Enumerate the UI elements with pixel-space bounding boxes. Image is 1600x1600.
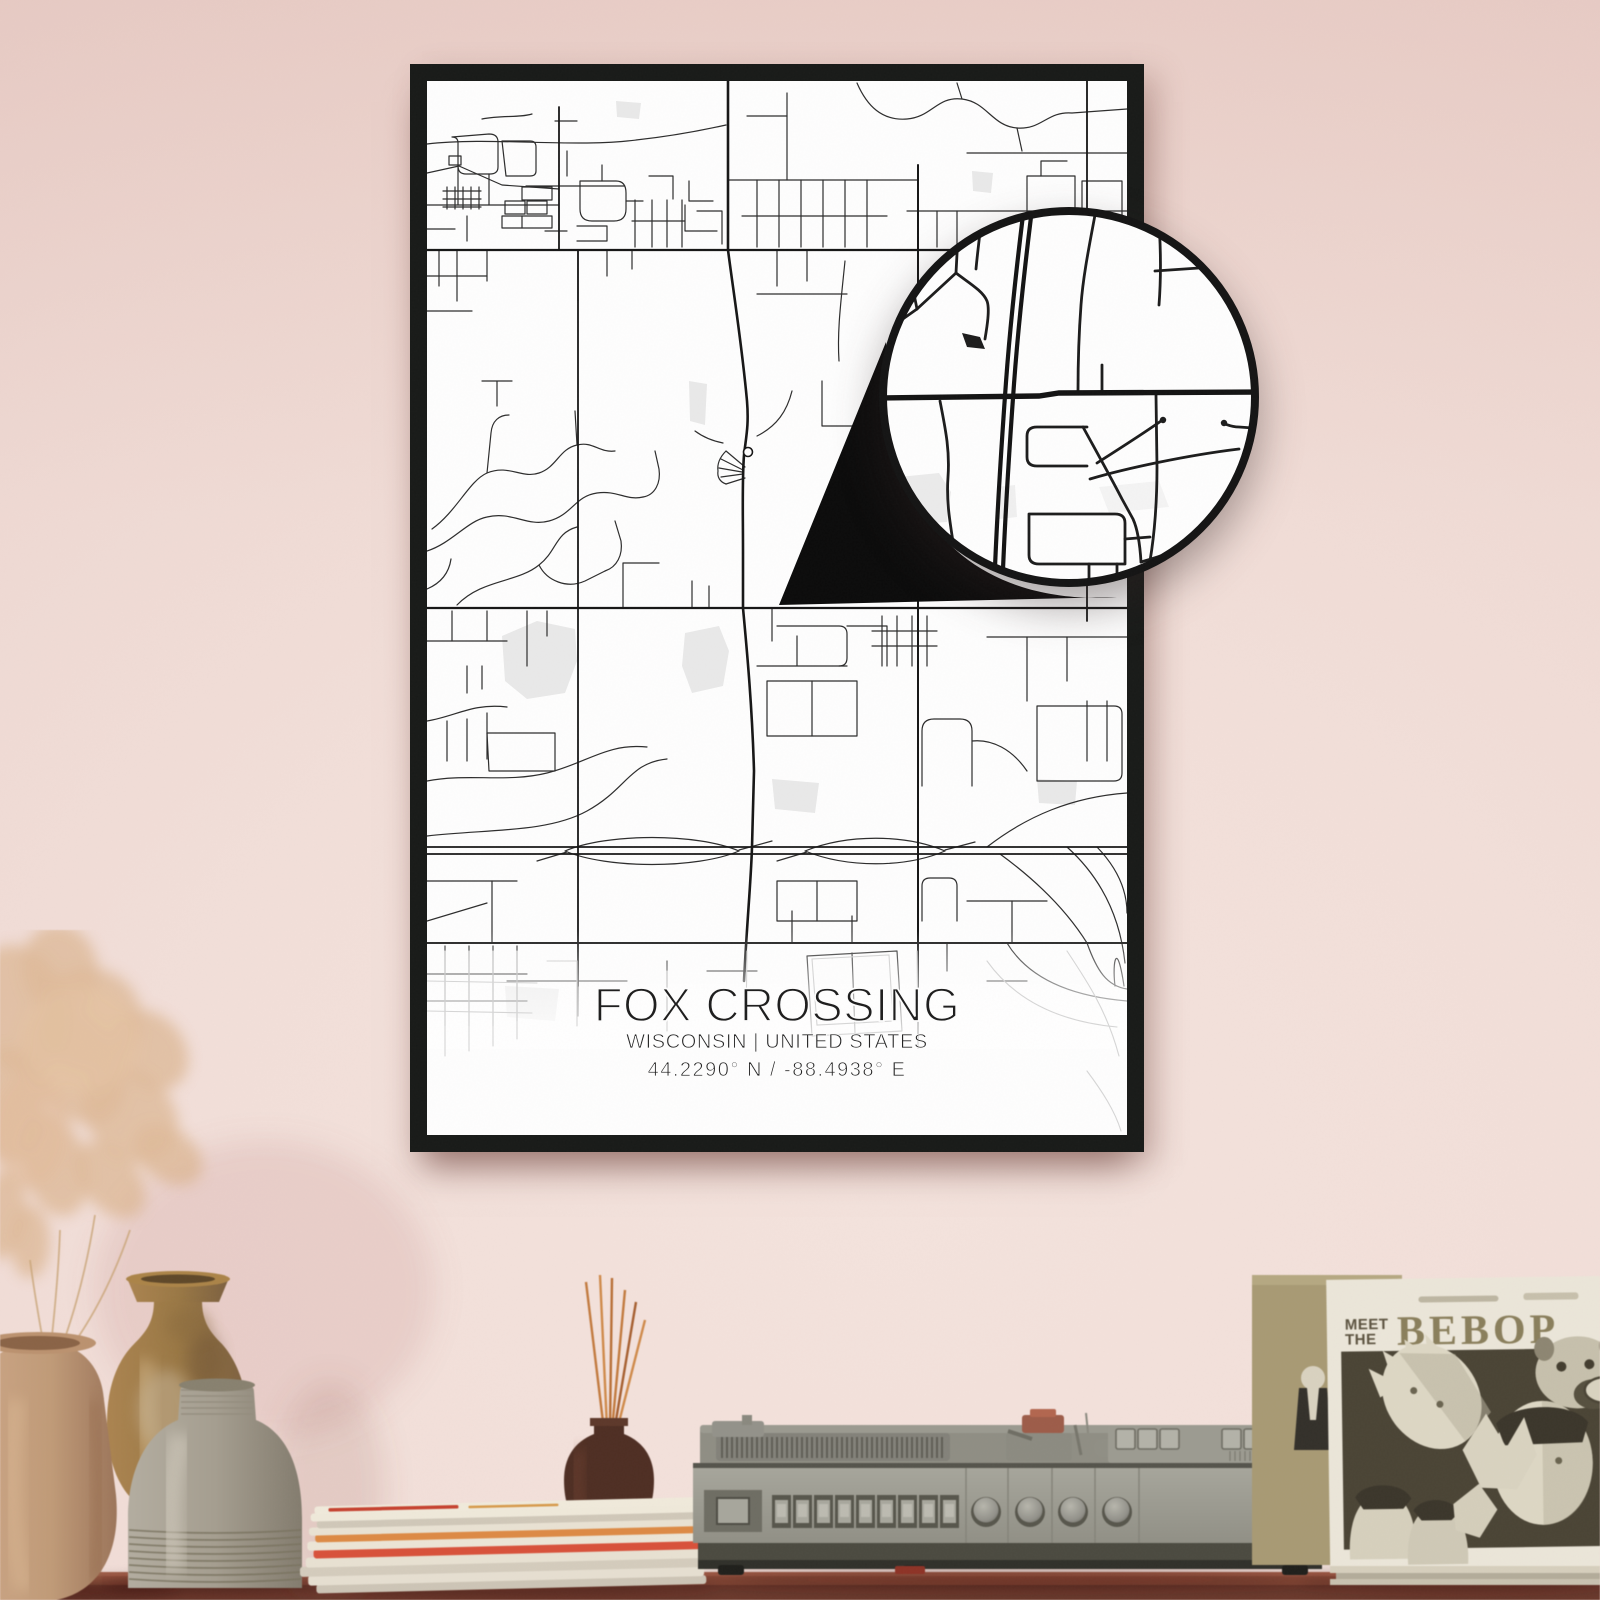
svg-text:THE: THE [1345, 1331, 1377, 1348]
